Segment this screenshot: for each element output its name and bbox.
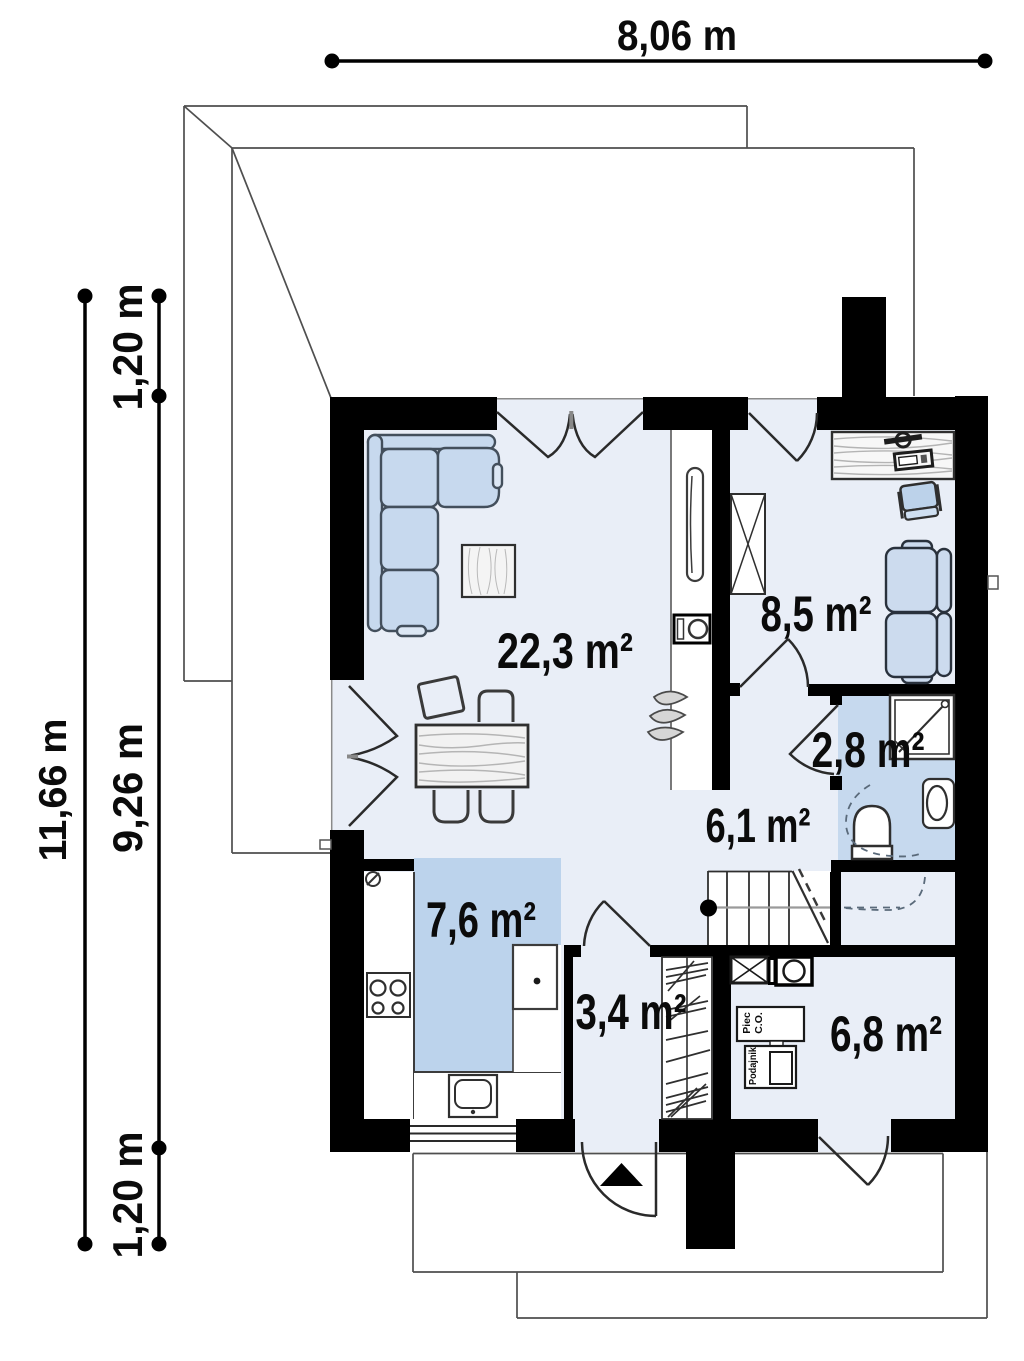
svg-text:22,3 m²: 22,3 m² [497,623,633,679]
svg-text:6,8 m²: 6,8 m² [830,1006,942,1062]
svg-text:6,1 m²: 6,1 m² [706,800,811,853]
svg-text:7,6 m²: 7,6 m² [426,892,536,948]
svg-text:8,5 m²: 8,5 m² [761,586,872,642]
svg-text:C.O.: C.O. [753,1012,765,1034]
svg-text:9,26 m: 9,26 m [104,723,151,853]
svg-text:1,20 m: 1,20 m [104,1132,151,1259]
svg-text:1,20 m: 1,20 m [104,284,151,411]
svg-text:2,8 m²: 2,8 m² [812,722,925,778]
svg-text:Podajnik: Podajnik [747,1047,759,1085]
svg-text:3,4 m²: 3,4 m² [576,984,687,1040]
svg-text:11,66 m: 11,66 m [32,719,75,862]
svg-text:8,06 m: 8,06 m [617,12,737,60]
svg-text:Piec: Piec [741,1012,753,1034]
